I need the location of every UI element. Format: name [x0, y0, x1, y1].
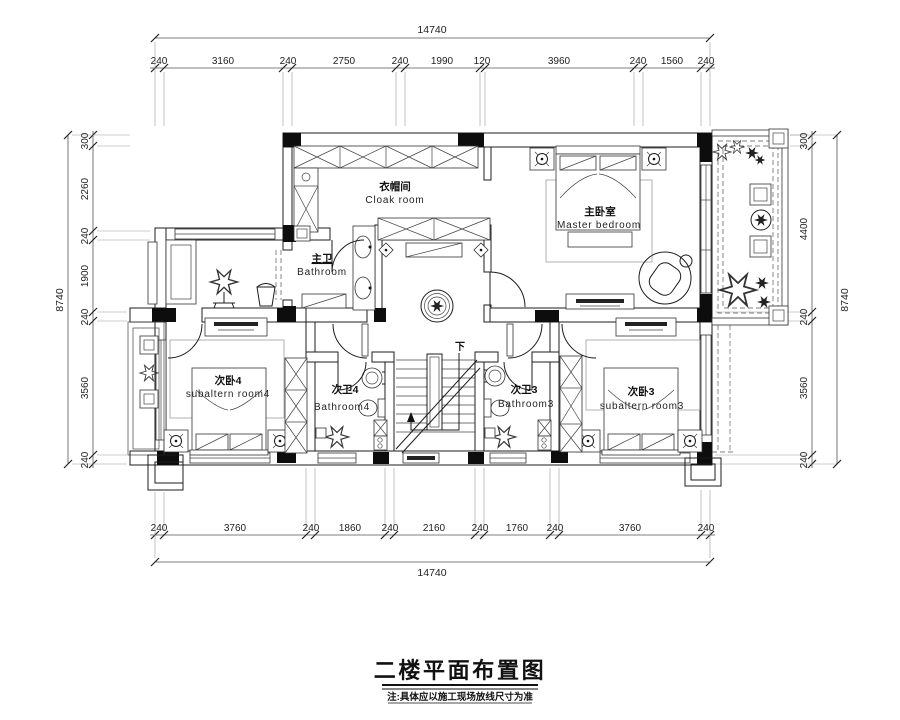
svg-text:240: 240 — [799, 451, 810, 468]
svg-text:4400: 4400 — [799, 217, 810, 240]
window-bedroom3-east — [701, 335, 711, 435]
dimension-chain-top: 14740 240 3160 240 2750 240 1990 120 3 — [150, 24, 715, 126]
window-master-east — [701, 165, 711, 293]
dim-right-segment-labels: 300 4400 240 3560 240 — [799, 132, 810, 468]
terrace-post-top — [769, 129, 788, 148]
sink-bath4 — [362, 368, 385, 388]
wardrobe-left — [294, 168, 318, 232]
door-bedroom4 — [168, 324, 202, 358]
terrace — [712, 129, 788, 325]
dim-top-extension-lines — [155, 42, 710, 126]
dimension-chain-left: 8740 300 2260 240 1900 240 3560 240 — [54, 131, 150, 468]
floor-plan-sheet: 14740 240 3160 240 2750 240 1990 120 3 — [0, 0, 900, 720]
room-label-master-bath-en: Bathroom — [297, 267, 347, 278]
wardrobe-bottom — [378, 218, 490, 240]
room-master-bedroom: 主卧室 Master bedroom — [490, 146, 692, 309]
svg-text:3960: 3960 — [548, 56, 571, 67]
stairs-down-label: 下 — [455, 341, 465, 353]
svg-text:2260: 2260 — [80, 177, 91, 200]
svg-text:1860: 1860 — [339, 523, 362, 534]
title-block: 二楼平面布置图 注:具体应以施工现场放线尺寸为准 — [374, 658, 546, 703]
svg-text:300: 300 — [799, 132, 810, 149]
terrace-stool-bottom — [750, 236, 771, 257]
nightstand-master-left — [530, 148, 554, 170]
dimension-chain-bottom: 240 3760 240 1860 240 2160 240 1760 240 … — [150, 468, 715, 579]
dim-bottom-total: 14740 — [417, 567, 446, 579]
svg-text:240: 240 — [698, 523, 715, 534]
svg-text:240: 240 — [630, 56, 647, 67]
room-label-bedroom3-en: subaltern room3 — [600, 401, 684, 412]
svg-text:240: 240 — [698, 56, 715, 67]
svg-text:240: 240 — [151, 523, 168, 534]
room-label-bath4-en: Bathroom4 — [314, 402, 370, 413]
svg-text:3560: 3560 — [799, 376, 810, 399]
room-master-bath: 主卫 Bathroom — [294, 226, 375, 310]
room-label-cloak-zh: 衣帽间 — [379, 180, 411, 193]
room-bath4: 次卫4 Bathroom4 — [314, 362, 387, 450]
shower-plant-bath4 — [316, 427, 349, 447]
terrace-plants-top — [713, 141, 766, 165]
svg-text:240: 240 — [80, 227, 91, 244]
terrace-table — [751, 210, 771, 230]
svg-text:3760: 3760 — [619, 523, 642, 534]
dim-top-segment-labels: 240 3160 240 2750 240 1990 120 3960 240 … — [151, 56, 715, 67]
window-bath3-south — [490, 453, 526, 463]
leisure-chair — [639, 252, 692, 304]
svg-text:240: 240 — [799, 308, 810, 325]
room-label-bath4-zh: 次卫4 — [332, 383, 359, 396]
dim-left-segment-labels: 300 2260 240 1900 240 3560 240 — [80, 132, 91, 468]
door-bedroom3 — [562, 324, 596, 358]
terrace-post-bottom — [769, 306, 788, 325]
bay-window-west — [148, 240, 196, 304]
room-label-master-en: Master bedroom — [557, 220, 641, 231]
drawing-note: 注:具体应以施工现场放线尺寸为准 — [387, 691, 533, 703]
svg-text:240: 240 — [151, 56, 168, 67]
svg-text:2160: 2160 — [423, 523, 446, 534]
svg-text:3160: 3160 — [212, 56, 235, 67]
room-bedroom3: 次卧3 subaltern room3 — [560, 318, 702, 455]
dim-top-total: 14740 — [417, 24, 446, 36]
dim-bottom-extension-lines — [155, 468, 710, 558]
stairs: 下 — [396, 341, 480, 453]
drawing-title: 二楼平面布置图 — [374, 658, 546, 683]
wardrobe-bedroom3 — [560, 356, 582, 452]
terrace-stool-top — [750, 184, 771, 205]
nightstand-bed4-left — [164, 430, 188, 452]
dim-right-extension-lines — [715, 135, 837, 464]
floor-medallion — [421, 290, 453, 322]
room-label-cloak-en: Cloak room — [365, 195, 424, 206]
bed-bench — [568, 232, 632, 247]
room-label-bath3-zh: 次卫3 — [511, 383, 538, 396]
room-label-bedroom3-zh: 次卧3 — [628, 385, 655, 398]
dim-bottom-segment-labels: 240 3760 240 1860 240 2160 240 1760 240 … — [151, 523, 715, 534]
sitting-area — [211, 250, 282, 308]
room-label-bedroom4-zh: 次卧4 — [215, 374, 242, 387]
svg-text:1990: 1990 — [431, 56, 454, 67]
svg-text:2750: 2750 — [333, 56, 356, 67]
dim-left-total: 8740 — [54, 288, 66, 312]
svg-text:240: 240 — [392, 56, 409, 67]
room-label-bath3-en: Bathroom3 — [498, 399, 554, 410]
console-table — [379, 243, 488, 257]
svg-text:120: 120 — [474, 56, 491, 67]
potted-plant — [211, 270, 238, 308]
wardrobe-bedroom4 — [285, 358, 307, 453]
room-label-bedroom4-en: subaltern room4 — [186, 389, 270, 400]
terrace-plants-bottom — [720, 274, 771, 308]
svg-text:240: 240 — [280, 56, 297, 67]
svg-text:240: 240 — [303, 523, 320, 534]
bath-bench — [302, 294, 346, 308]
cabinet-bath3 — [538, 420, 551, 450]
svg-text:240: 240 — [80, 451, 91, 468]
window-sitting-north — [175, 229, 275, 239]
nightstand-bed3-right — [678, 430, 702, 452]
svg-text:240: 240 — [382, 523, 399, 534]
room-bedroom4: 次卧4 subaltern room4 — [164, 318, 307, 455]
svg-text:1900: 1900 — [80, 264, 91, 287]
svg-text:1760: 1760 — [506, 523, 529, 534]
vanity-double-sink — [353, 226, 375, 310]
room-label-master-bath-zh: 主卫 — [312, 252, 333, 265]
room-cloak: 衣帽间 Cloak room — [294, 146, 490, 240]
dresser-bedroom3 — [616, 318, 676, 336]
dresser-bedroom4 — [205, 318, 267, 336]
svg-text:240: 240 — [547, 523, 564, 534]
small-chair — [257, 284, 275, 307]
dim-right-total: 8740 — [839, 288, 851, 312]
svg-text:1560: 1560 — [661, 56, 684, 67]
room-label-master-zh: 主卧室 — [584, 205, 616, 218]
wardrobe-top — [294, 146, 478, 168]
shower-plant-bath3 — [485, 427, 516, 447]
svg-text:300: 300 — [80, 132, 91, 149]
room-bath3: 次卫3 Bathroom3 — [484, 362, 554, 450]
window-bath4-south — [318, 453, 356, 463]
door-master — [490, 272, 525, 307]
window-stairs-south — [403, 453, 439, 463]
svg-text:3560: 3560 — [80, 376, 91, 399]
stair-rail — [427, 354, 442, 430]
svg-text:240: 240 — [80, 308, 91, 325]
svg-text:3760: 3760 — [224, 523, 247, 534]
cabinet-bath4 — [374, 420, 387, 450]
sink-bath3 — [484, 366, 505, 386]
svg-text:240: 240 — [472, 523, 489, 534]
floor-plan-drawing: 14740 240 3160 240 2750 240 1990 120 3 — [0, 0, 900, 720]
tv-cabinet-master — [566, 294, 634, 309]
nightstand-master-right — [642, 148, 666, 170]
